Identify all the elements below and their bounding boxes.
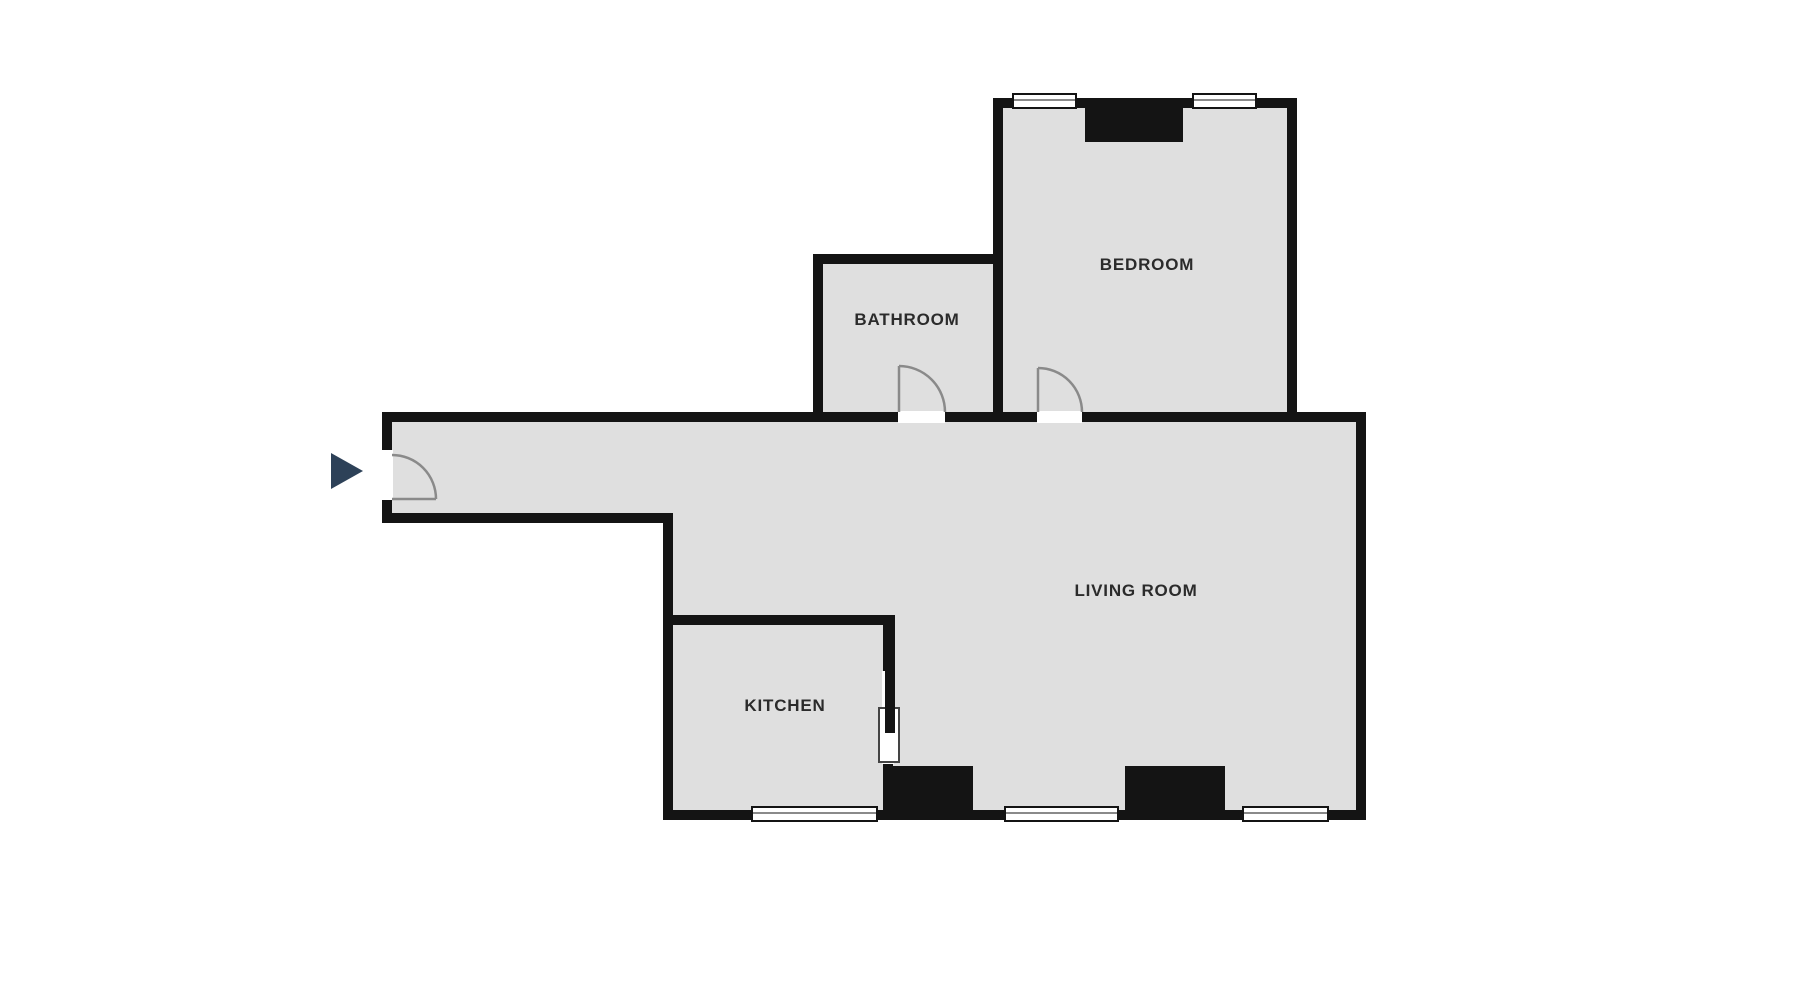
living-window-right: [1243, 807, 1328, 821]
wall-kitchen-left: [663, 513, 673, 820]
bedroom-door-opening: [1037, 411, 1082, 423]
wall-living-top: [382, 412, 1366, 422]
floor-plan: BEDROOM BATHROOM LIVING ROOM KITCHEN: [0, 0, 1800, 1000]
hallway-floor: [387, 417, 673, 518]
room-label-bathroom: BATHROOM: [854, 310, 959, 329]
wall-bathroom-left: [813, 254, 823, 422]
room-label-bedroom: BEDROOM: [1100, 255, 1194, 274]
wall-bedroom-right: [1287, 98, 1297, 422]
wall-bathroom-top: [813, 254, 998, 264]
bedroom-closet-block: [1085, 98, 1183, 142]
room-label-kitchen: KITCHEN: [744, 696, 825, 715]
bedroom-window-left: [1013, 94, 1076, 108]
bathroom-floor: [818, 259, 998, 418]
sliding-door-wall-stub: [885, 615, 895, 733]
wall-kitchen-top: [663, 615, 893, 625]
entrance-door-opening: [381, 450, 393, 500]
floor-plan-svg: BEDROOM BATHROOM LIVING ROOM KITCHEN: [0, 0, 1800, 1000]
room-label-living-room: LIVING ROOM: [1074, 581, 1197, 600]
kitchen-window: [752, 807, 877, 821]
bathroom-door-opening: [898, 411, 945, 423]
wall-living-right: [1356, 412, 1366, 820]
living-window-left: [1005, 807, 1118, 821]
living-bottom-block-left: [888, 766, 973, 812]
entrance-arrow-icon: [331, 453, 363, 489]
room-floors: [387, 103, 1360, 815]
wall-hallway-bottom: [382, 513, 673, 523]
bedroom-window-right: [1193, 94, 1256, 108]
living-bottom-block-right: [1125, 766, 1225, 812]
